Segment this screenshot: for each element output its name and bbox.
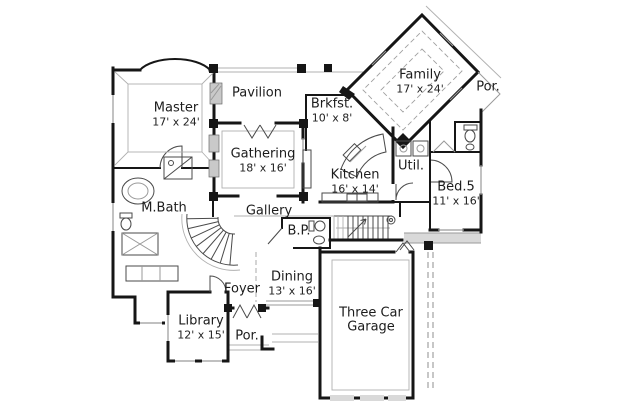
gathering-name: Gathering bbox=[231, 147, 296, 162]
room-label-brkfst: Brkfst. 10' x 8' bbox=[311, 98, 353, 125]
room-label-powder: B.P. bbox=[288, 225, 311, 238]
pavilion-name: Pavilion bbox=[232, 86, 282, 101]
floor-plan: Master 17' x 24' Pavilion Brkfst. 10' x … bbox=[0, 0, 620, 415]
powder-name: B.P. bbox=[288, 224, 311, 239]
room-label-foyer: Foyer bbox=[224, 283, 260, 296]
room-label-library: Library 12' x 15' bbox=[177, 315, 225, 342]
brkfst-dims: 10' x 8' bbox=[311, 112, 353, 125]
family-dims: 17' x 24' bbox=[396, 83, 444, 96]
garage-name-line2: Garage bbox=[339, 321, 403, 334]
room-label-dining: Dining 13' x 16' bbox=[268, 271, 316, 298]
library-dims: 12' x 15' bbox=[177, 329, 225, 342]
room-label-garage: Three Car Garage bbox=[339, 307, 403, 334]
util-name: Util. bbox=[398, 159, 424, 174]
gathering-dims: 18' x 16' bbox=[231, 162, 296, 175]
foyer-name: Foyer bbox=[224, 282, 260, 297]
room-label-kitchen: Kitchen 16' x 14' bbox=[331, 169, 380, 196]
spiral-staircase bbox=[182, 214, 240, 270]
room-label-family: Family 17' x 24' bbox=[396, 69, 444, 96]
porch-front-name: Por. bbox=[235, 329, 259, 344]
dining-south-windows bbox=[266, 299, 321, 307]
room-label-porch-front: Por. bbox=[235, 330, 259, 343]
room-label-pavilion: Pavilion bbox=[232, 87, 282, 100]
floorplan-drawing bbox=[0, 0, 620, 415]
dining-name: Dining bbox=[271, 270, 313, 285]
brkfst-name: Brkfst. bbox=[311, 97, 353, 112]
room-label-porch-right: Por. bbox=[476, 81, 500, 94]
right-wing-walls bbox=[430, 122, 481, 232]
back-staircase bbox=[330, 202, 414, 250]
garage-name: Three Car bbox=[339, 306, 403, 321]
bed5-dims: 11' x 16' bbox=[432, 195, 480, 208]
bed5-name: Bed.5 bbox=[437, 180, 475, 195]
dining-dims: 13' x 16' bbox=[268, 285, 316, 298]
gallery-name: Gallery bbox=[246, 204, 292, 219]
room-label-mbath: M.Bath bbox=[141, 202, 187, 215]
master-name: Master bbox=[154, 101, 198, 116]
room-label-bed5: Bed.5 11' x 16' bbox=[432, 181, 480, 208]
room-label-gathering: Gathering 18' x 16' bbox=[231, 148, 296, 175]
library-name: Library bbox=[178, 314, 223, 329]
kitchen-name: Kitchen bbox=[331, 168, 380, 183]
room-label-util: Util. bbox=[398, 160, 424, 173]
master-dims: 17' x 24' bbox=[152, 116, 200, 129]
room-label-master: Master 17' x 24' bbox=[152, 102, 200, 129]
kitchen-dims: 16' x 14' bbox=[331, 183, 380, 196]
walkway-and-overhang bbox=[404, 233, 481, 392]
family-name: Family bbox=[399, 68, 441, 83]
room-label-gallery: Gallery bbox=[246, 205, 292, 218]
master-bath-fixtures bbox=[120, 157, 192, 281]
porch-right-name: Por. bbox=[476, 80, 500, 95]
mbath-name: M.Bath bbox=[141, 201, 187, 216]
